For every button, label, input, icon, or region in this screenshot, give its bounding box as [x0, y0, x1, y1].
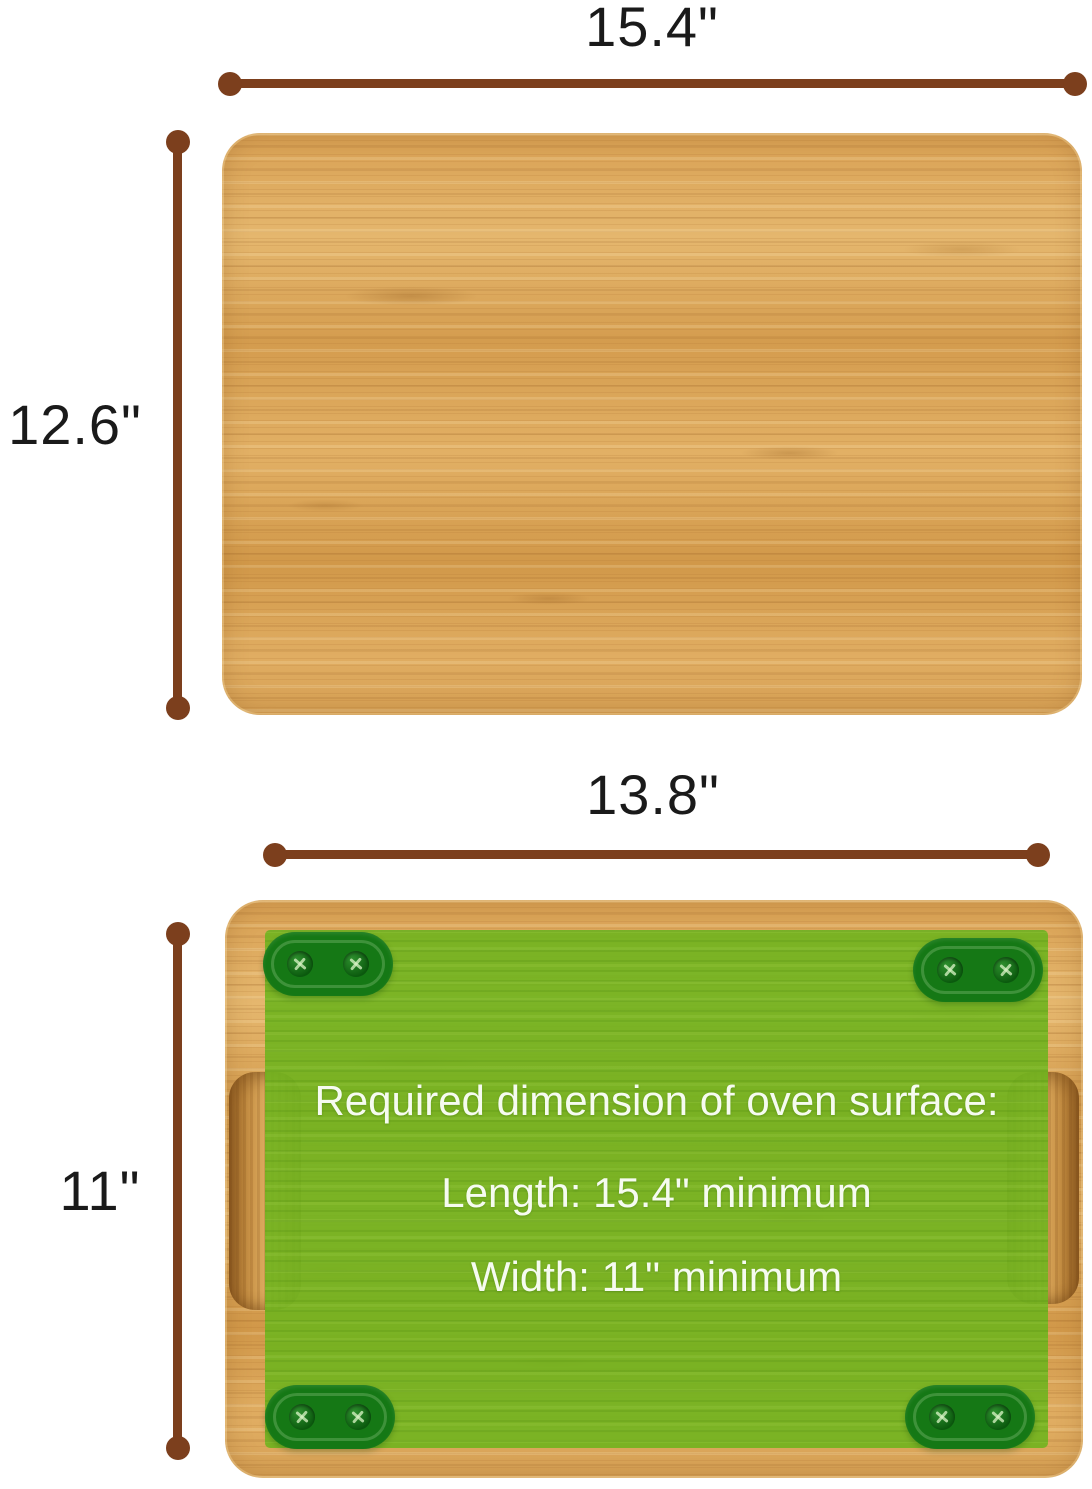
bottom-board-height-label: 11"	[20, 1158, 180, 1224]
dimension-endpoint-dot	[166, 922, 190, 946]
top-board-height-label: 12.6"	[0, 392, 155, 458]
dimension-endpoint-dot	[166, 696, 190, 720]
top-board-width-label: 15.4"	[402, 0, 902, 60]
dimension-endpoint-dot	[166, 130, 190, 154]
silicone-foot-bottom-left	[265, 1385, 395, 1449]
overlay-width-text: Width: 11" minimum	[265, 1246, 1048, 1308]
overlay-length-text: Length: 15.4" minimum	[265, 1162, 1048, 1224]
oven-surface-overlay: Required dimension of oven surface: Leng…	[265, 930, 1048, 1448]
dimension-endpoint-dot	[166, 1436, 190, 1460]
foot-screw-icon	[289, 1404, 315, 1430]
cutting-board-bottom-view: Required dimension of oven surface: Leng…	[225, 900, 1083, 1478]
dimension-endpoint-dot	[1063, 72, 1087, 96]
foot-screw-icon	[345, 1404, 371, 1430]
dimension-endpoint-dot	[218, 72, 242, 96]
dimension-endpoint-dot	[1026, 843, 1050, 867]
dimension-endpoint-dot	[263, 843, 287, 867]
overlay-title: Required dimension of oven surface:	[265, 1070, 1048, 1132]
foot-screw-icon	[985, 1404, 1011, 1430]
cutting-board-top-view	[222, 133, 1082, 715]
top-board-width-dimension-line	[228, 79, 1077, 88]
bottom-board-width-dimension-line	[273, 850, 1040, 859]
foot-screw-icon	[993, 957, 1019, 983]
foot-screw-icon	[343, 951, 369, 977]
silicone-foot-top-left	[263, 932, 393, 996]
foot-screw-icon	[287, 951, 313, 977]
product-dimension-diagram: 15.4" 12.6" 13.8" 11" Required dimension…	[0, 0, 1092, 1489]
silicone-foot-top-right	[913, 938, 1043, 1002]
foot-screw-icon	[929, 1404, 955, 1430]
silicone-foot-bottom-right	[905, 1385, 1035, 1449]
bottom-board-width-label: 13.8"	[403, 762, 903, 828]
foot-screw-icon	[937, 957, 963, 983]
top-board-height-dimension-line	[173, 140, 182, 710]
